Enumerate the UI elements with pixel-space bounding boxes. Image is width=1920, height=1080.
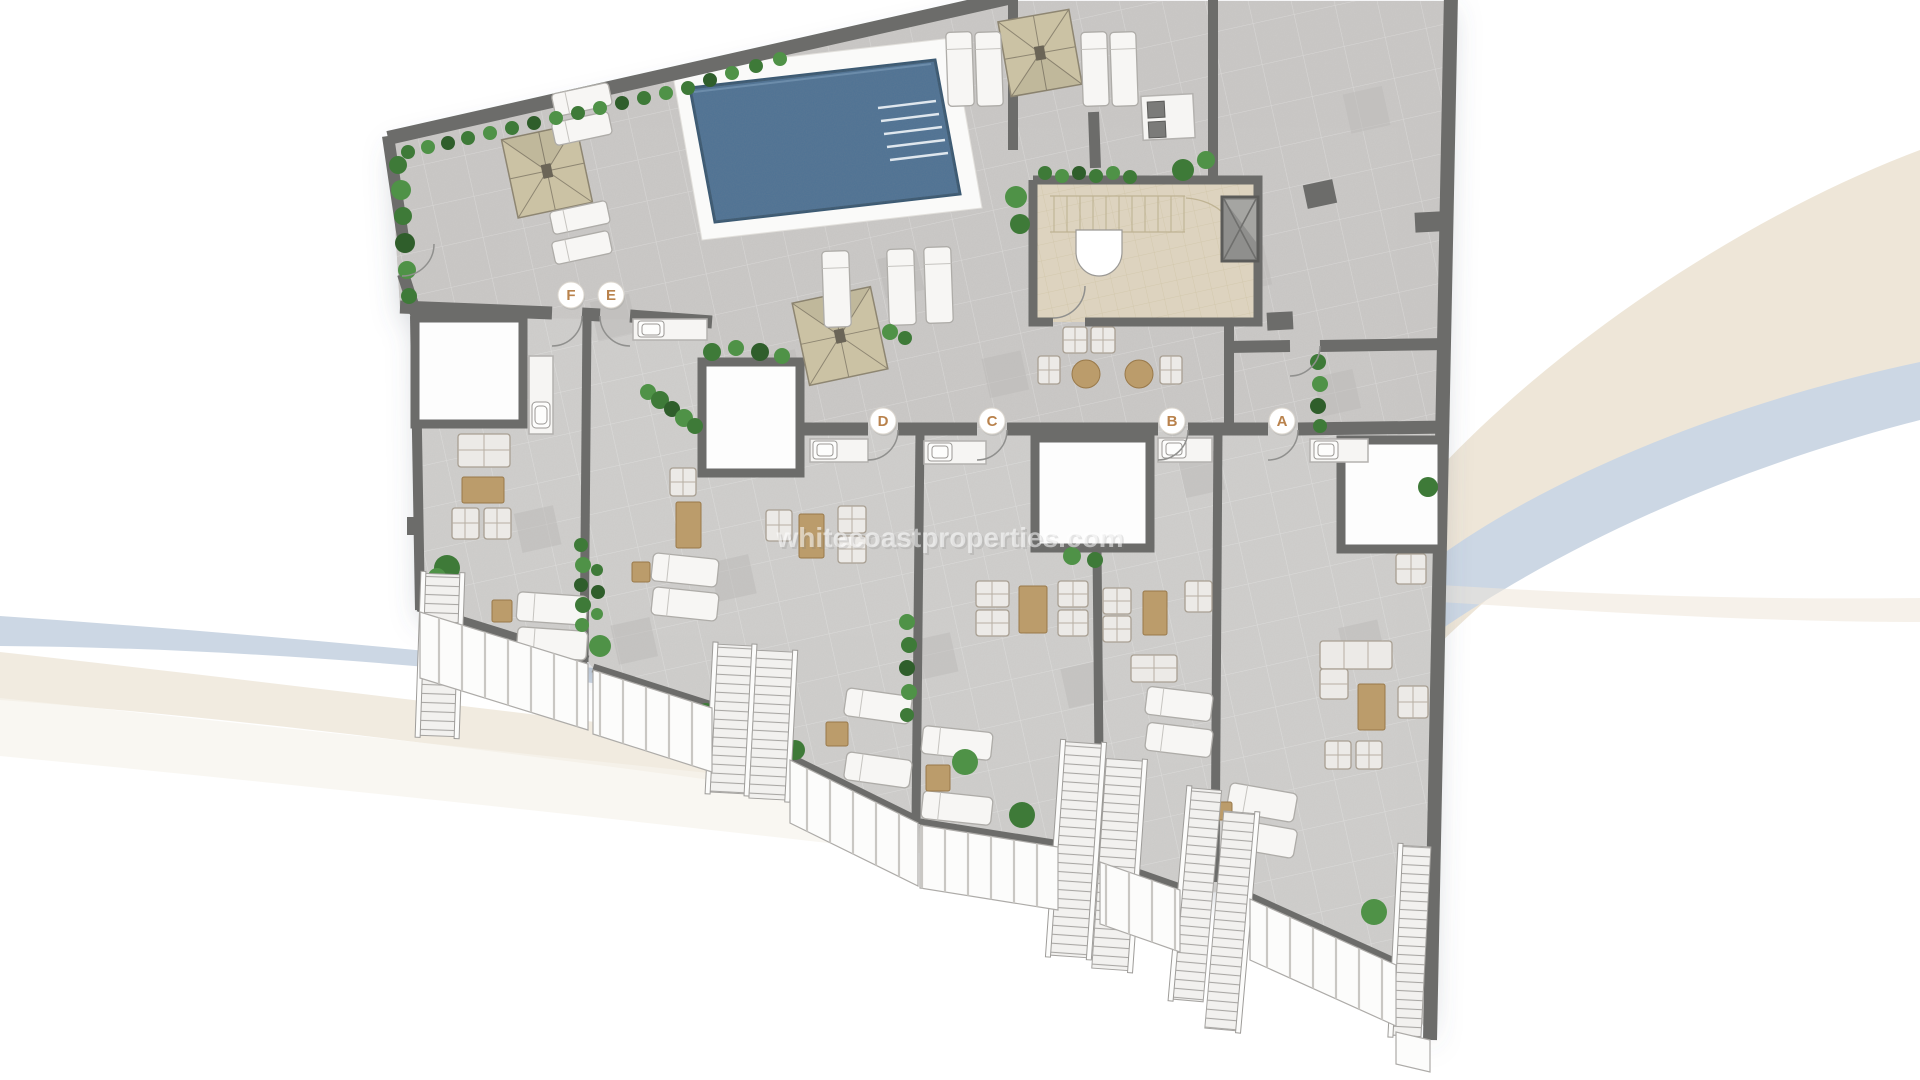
pier-block (1414, 211, 1441, 232)
sun-lounger (887, 249, 917, 326)
wicker-chair (1185, 581, 1212, 612)
unit-label-C-text: C (987, 413, 998, 430)
wicker-chair (452, 508, 479, 539)
wall-stub (1088, 112, 1101, 168)
stairwell-void (1076, 230, 1122, 276)
sun-lounger (651, 587, 720, 622)
kitchenette-A (1310, 439, 1368, 462)
coffee-table (1143, 591, 1167, 635)
sun-lounger (822, 251, 852, 328)
wicker-chair (484, 508, 511, 539)
wicker-sofa (1131, 655, 1177, 682)
wicker-chair (1396, 554, 1426, 584)
kitchenette-C (924, 441, 986, 464)
sun-lounger (651, 553, 720, 588)
unit-label-F-text: F (566, 287, 575, 304)
floorplan-image: F E D C B A whitecoastproperties.com whi… (0, 0, 1920, 1080)
core-stair-treads (1050, 196, 1185, 232)
upper-right-wall (1229, 344, 1449, 347)
pier-block (1267, 311, 1294, 330)
elevator-icon (1222, 197, 1258, 261)
pouf (1072, 360, 1100, 388)
wicker-chair (670, 468, 696, 496)
unit-label-A-text: A (1277, 413, 1288, 430)
wicker-chair (976, 581, 1009, 607)
sun-lounger (946, 32, 975, 107)
wall-notch (407, 517, 422, 535)
divider-D-C (916, 432, 920, 824)
staircase (705, 642, 798, 802)
wicker-table (1091, 327, 1115, 353)
wicker-chair (1160, 356, 1182, 384)
side-table (492, 600, 512, 622)
pouf (1125, 360, 1153, 388)
unit-label-B-text: B (1167, 413, 1178, 430)
watermark: whitecoastproperties.com whitecoastprope… (776, 522, 1126, 555)
stair-core (1033, 180, 1258, 322)
wicker-chair (1325, 741, 1351, 769)
kitchenette-F (529, 356, 553, 434)
sun-lounger (1110, 32, 1139, 107)
skylight (415, 318, 523, 424)
pergola-icon (998, 9, 1082, 96)
kitchenette-E (633, 319, 707, 340)
wicker-chair (1356, 741, 1382, 769)
wicker-table (1063, 327, 1087, 353)
swoosh-beige-right-thin (1440, 585, 1920, 622)
coffee-table (1358, 684, 1385, 730)
sun-lounger (1081, 32, 1110, 107)
wicker-chair (1058, 581, 1088, 607)
wicker-chair (976, 610, 1009, 636)
unit-label-E-text: E (606, 287, 616, 304)
watermark-text: whitecoastproperties.com (776, 522, 1124, 553)
side-table (826, 722, 848, 746)
wicker-sofa (458, 434, 510, 467)
sun-lounger (924, 247, 954, 324)
unit-label-D-text: D (878, 413, 889, 430)
wicker-chair (1038, 356, 1060, 384)
sun-lounger (975, 32, 1004, 107)
skylight (702, 362, 800, 473)
staircase (1045, 739, 1149, 973)
coffee-table (676, 502, 701, 548)
coffee-table (462, 477, 504, 503)
wicker-chair (1103, 616, 1131, 642)
wicker-chair (1103, 588, 1131, 614)
coffee-table (1019, 586, 1047, 633)
wicker-chair (1058, 610, 1088, 636)
wicker-chair (1398, 686, 1428, 718)
kitchenette-D (810, 439, 868, 462)
side-table (632, 562, 650, 582)
bbq-counter (1141, 94, 1195, 141)
side-table (926, 765, 950, 791)
